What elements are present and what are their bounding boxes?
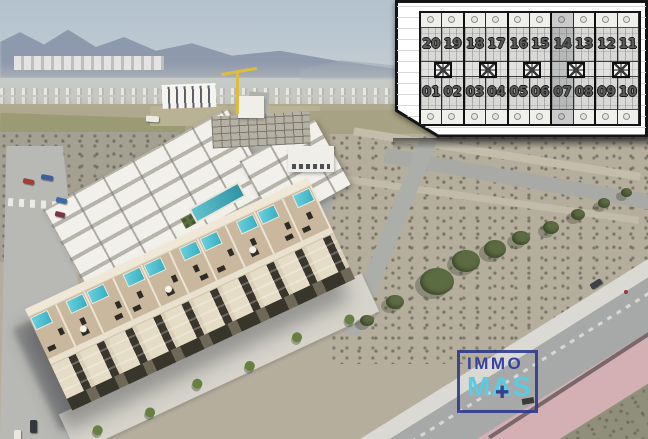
- plan-room: 19: [442, 28, 462, 61]
- plan-room: 17: [486, 28, 506, 61]
- terrace-cell: [552, 109, 572, 124]
- plan-room: 04: [486, 77, 506, 110]
- tree: [484, 240, 506, 258]
- rooftop-pool: [237, 215, 257, 233]
- logo-line2: MAS ✚: [467, 373, 535, 401]
- tree: [143, 406, 156, 419]
- plan-room: 12: [596, 28, 616, 61]
- rooftop-pool: [67, 294, 87, 312]
- rooftop-pool: [145, 258, 165, 276]
- rooftop-pool: [293, 189, 313, 207]
- plan-unit-number: 18: [466, 38, 484, 51]
- terrace-cell: [618, 13, 638, 28]
- terrace-furniture: [284, 233, 293, 241]
- rooftop-pool: [88, 285, 108, 303]
- terrace-furniture: [284, 222, 291, 230]
- plan-unit-number: 19: [444, 38, 462, 51]
- terrace-cell: [530, 13, 550, 28]
- plan-room: 14: [552, 28, 572, 61]
- terrace-furniture: [249, 238, 256, 246]
- plan-room: 07: [552, 77, 572, 110]
- plan-unit-number: 12: [597, 38, 615, 51]
- plan-unit-number: 15: [531, 38, 549, 51]
- rooftop-pool: [124, 268, 144, 286]
- tree: [191, 377, 204, 390]
- terrace-cell: [442, 13, 462, 28]
- plan-unit-number: 04: [487, 86, 505, 99]
- terrace-furniture: [302, 225, 311, 233]
- terrace-cell: [552, 13, 572, 28]
- construction-crane-mast: [236, 72, 239, 114]
- plan-room: 05: [509, 77, 529, 110]
- terrace-furniture: [132, 304, 141, 312]
- plan-unit-number: 20: [422, 38, 440, 51]
- terrace-cell: [486, 109, 506, 124]
- terrace-cell: [596, 109, 616, 124]
- plan-room: 08: [574, 77, 594, 110]
- plan-room: 16: [509, 28, 529, 61]
- terrace-cell: [421, 13, 441, 28]
- screenshot-root: 2001190218031704160515061407130812091110…: [0, 0, 648, 439]
- tree: [290, 331, 303, 344]
- rooftop-pool: [201, 232, 221, 250]
- plan-unit-number: 07: [554, 86, 572, 99]
- construction-building: [238, 96, 264, 118]
- terrace-furniture: [306, 211, 313, 219]
- plan-unit-number: 02: [444, 86, 462, 99]
- plan-unit-number: 17: [487, 38, 505, 51]
- agency-logo: IMMO MAS ✚: [457, 350, 538, 413]
- plan-content: 2001190218031704160515061407130812091110: [395, 0, 648, 138]
- terrace-furniture: [199, 273, 208, 281]
- plan-unit-number: 03: [466, 86, 484, 99]
- tree: [91, 424, 104, 437]
- terrace-cell: [596, 13, 616, 28]
- terrace-cell: [421, 109, 441, 124]
- rooftop-pool: [258, 206, 278, 224]
- tree: [243, 359, 256, 372]
- terrace-furniture: [217, 265, 226, 273]
- terrace-furniture: [58, 327, 65, 335]
- plan-unit-number: 10: [619, 86, 637, 99]
- tree: [543, 221, 559, 234]
- plan-room: 13: [574, 28, 594, 61]
- car: [14, 430, 21, 439]
- plan-room: 01: [421, 77, 441, 110]
- plan-unit-block: 2001190218031704160515061407130812091110: [419, 11, 641, 126]
- site-plan-overlay: 2001190218031704160515061407130812091110: [395, 0, 648, 138]
- plan-unit-number: 01: [422, 86, 440, 99]
- stair-core-icon: [434, 62, 452, 78]
- plan-room: 15: [530, 28, 550, 61]
- plan-unit-number: 05: [510, 86, 528, 99]
- rooftop-pool: [31, 311, 51, 329]
- terrace-cell: [486, 13, 506, 28]
- building-windows: [292, 164, 330, 169]
- plan-room: 10: [618, 77, 638, 110]
- terrace-cell: [509, 13, 529, 28]
- plan-room: 09: [596, 77, 616, 110]
- terrace-furniture: [136, 291, 143, 299]
- terrace-cell: [465, 109, 485, 124]
- plan-room: 11: [618, 28, 638, 61]
- terrace-cell: [618, 109, 638, 124]
- terrace-cell: [442, 109, 462, 124]
- village-strip: [14, 56, 164, 70]
- terrace-furniture: [47, 344, 56, 352]
- terrace-furniture: [114, 301, 121, 309]
- plan-unit-number: 08: [575, 86, 593, 99]
- tree: [598, 198, 610, 208]
- plan-unit-number: 11: [619, 38, 637, 51]
- terrace-cell: [574, 109, 594, 124]
- logo-plus-icon: ✚: [495, 384, 510, 401]
- stair-core-icon: [523, 62, 541, 78]
- tree: [343, 313, 356, 326]
- plan-room: 06: [530, 77, 550, 110]
- pedestrian: [624, 290, 628, 294]
- tree: [420, 268, 454, 295]
- terrace-furniture: [115, 313, 124, 321]
- stair-core-icon: [479, 62, 497, 78]
- car: [30, 420, 37, 433]
- rooftop-pool: [180, 242, 200, 260]
- terrace-cell: [530, 109, 550, 124]
- plan-room: 02: [442, 77, 462, 110]
- plan-unit-number: 14: [554, 38, 572, 51]
- tree: [621, 188, 632, 197]
- plan-unit-number: 09: [597, 86, 615, 99]
- terrace-cell: [574, 13, 594, 28]
- terrace-furniture: [171, 274, 178, 282]
- plan-unit-number: 13: [575, 38, 593, 51]
- van: [146, 116, 159, 123]
- boundary-wall: [393, 138, 648, 149]
- plan-room: 03: [465, 77, 485, 110]
- terrace-cell: [509, 109, 529, 124]
- terrace-furniture: [193, 264, 200, 272]
- rowhouses-under-construction: [162, 83, 217, 109]
- terrace-cell: [465, 13, 485, 28]
- plan-unit-number: 06: [531, 86, 549, 99]
- stair-core-icon: [612, 62, 630, 78]
- plan-room: 18: [465, 28, 485, 61]
- stair-core-icon: [567, 62, 585, 78]
- plan-room: 20: [421, 28, 441, 61]
- plan-unit-number: 16: [510, 38, 528, 51]
- terrace-furniture: [227, 248, 234, 256]
